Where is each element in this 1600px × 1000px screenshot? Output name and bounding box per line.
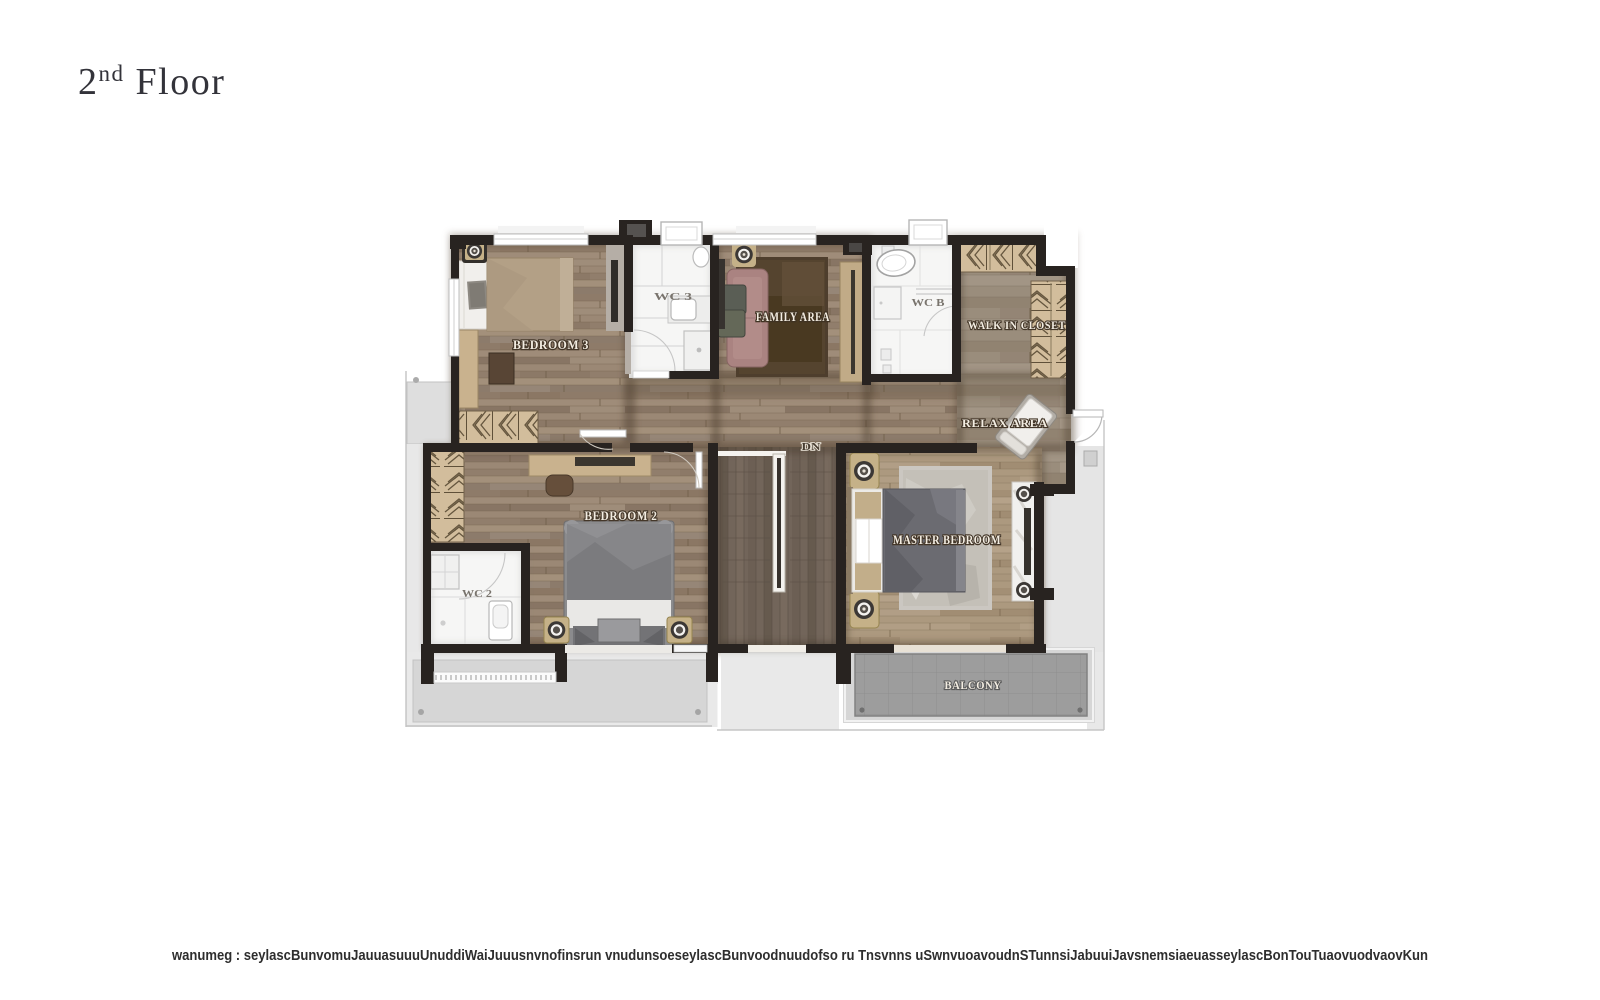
svg-text:DN: DN bbox=[802, 442, 822, 453]
svg-text:RELAX AREA: RELAX AREA bbox=[962, 418, 1048, 430]
svg-text:WC B: WC B bbox=[912, 297, 946, 309]
svg-text:BEDROOM 3: BEDROOM 3 bbox=[513, 338, 589, 352]
svg-text:wanumeg : seylascBunvomuJauuas: wanumeg : seylascBunvomuJauuasuuuUnuddiW… bbox=[171, 947, 1428, 964]
svg-text:WC 3: WC 3 bbox=[654, 291, 693, 303]
svg-text:MASTER BEDROOM: MASTER BEDROOM bbox=[893, 533, 1001, 547]
svg-text:BEDROOM 2: BEDROOM 2 bbox=[585, 509, 658, 523]
svg-text:WALK IN CLOSET: WALK IN CLOSET bbox=[968, 320, 1066, 332]
svg-text:FAMILY AREA: FAMILY AREA bbox=[756, 310, 830, 324]
svg-text:WC 2: WC 2 bbox=[462, 588, 493, 600]
svg-text:BALCONY: BALCONY bbox=[945, 680, 1002, 692]
